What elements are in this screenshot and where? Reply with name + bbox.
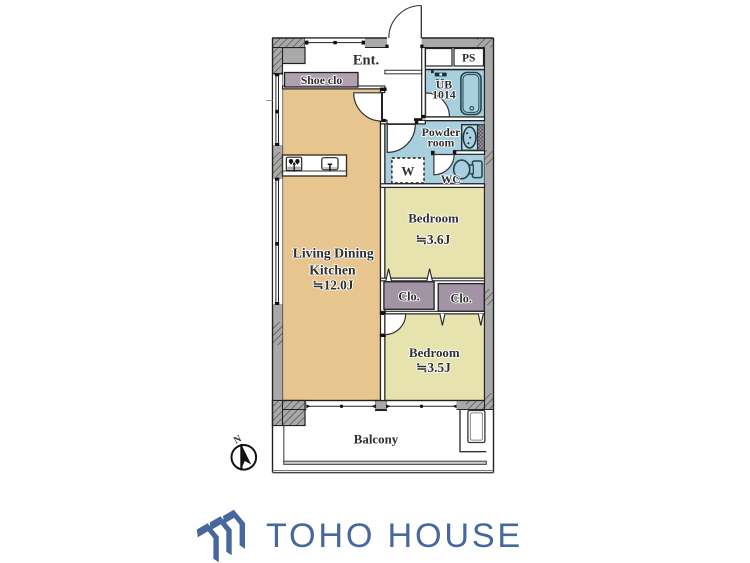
svg-text:W: W — [401, 163, 414, 178]
svg-text:Bedroom: Bedroom — [408, 212, 459, 226]
svg-text:1014: 1014 — [432, 88, 456, 102]
svg-text:room: room — [428, 135, 455, 149]
svg-text:Clo.: Clo. — [451, 292, 472, 306]
svg-text:Shoe clo: Shoe clo — [301, 73, 343, 87]
svg-text:≒12.0J: ≒12.0J — [313, 278, 354, 293]
svg-text:Balcony: Balcony — [354, 432, 399, 446]
svg-text:Living Dining: Living Dining — [293, 245, 374, 260]
svg-text:Clo.: Clo. — [398, 290, 419, 304]
svg-text:PS: PS — [462, 53, 475, 65]
svg-text:WC: WC — [441, 174, 461, 186]
svg-text:≒3.6J: ≒3.6J — [416, 232, 451, 247]
svg-text:Ent.: Ent. — [353, 53, 379, 69]
svg-text:TOHO HOUSE: TOHO HOUSE — [266, 517, 523, 555]
svg-text:Kitchen: Kitchen — [309, 263, 356, 278]
svg-text:≒3.5J: ≒3.5J — [416, 360, 451, 375]
svg-text:Bedroom: Bedroom — [409, 346, 460, 360]
